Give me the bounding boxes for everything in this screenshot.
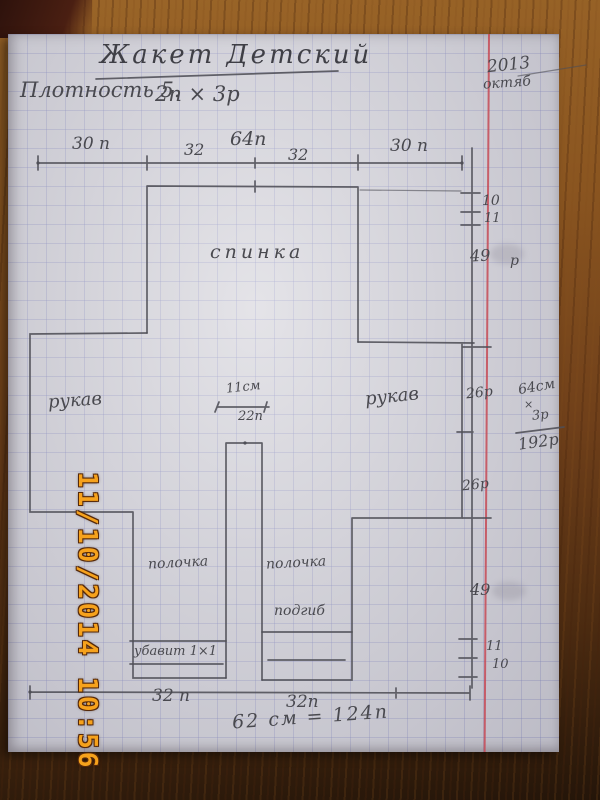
sleeve-left-outline <box>30 333 226 678</box>
dim-back-half-right: 32 <box>288 147 308 163</box>
page-title: Жакет Детский <box>100 42 372 68</box>
dim-left-sleeve-width: 30 п <box>72 136 110 153</box>
label-front-left: полочка <box>148 554 209 571</box>
neck-center-dot <box>243 441 246 444</box>
calc-line2: 3р <box>531 408 549 423</box>
gauge-value: 2п × 3р <box>155 84 240 105</box>
label-sleeve-left: рукав <box>47 390 102 412</box>
neck-width-cm: 11см <box>225 379 261 396</box>
neck-width-stitches: 22п <box>238 410 263 423</box>
dim-end-dot <box>28 690 31 693</box>
corner-month: октяб <box>483 74 532 91</box>
camera-timestamp: 11/10/2014 10:56 <box>68 472 102 772</box>
dim-line-top <box>38 155 462 170</box>
rdim-49-bottom: 49 <box>470 582 490 598</box>
rdim-11-bottom: 11 <box>486 640 503 653</box>
dim-end-dot <box>460 161 463 164</box>
rdim-49-top-suffix: р <box>510 254 519 268</box>
label-decrease: убавит 1×1 <box>134 645 217 658</box>
rdim-10-bottom: 10 <box>492 658 509 671</box>
rdim-10-top: 10 <box>482 194 500 208</box>
rdim-11-top: 11 <box>484 212 501 225</box>
label-hem: подгиб <box>274 604 325 618</box>
label-front-right: полочка <box>266 554 327 571</box>
dim-end-dot <box>36 161 39 164</box>
rdim-26-upper: 26р <box>465 385 493 402</box>
hem-fold-lines <box>262 632 352 660</box>
eraser-smudge <box>492 582 526 600</box>
dim-back-width: 64п <box>230 130 266 149</box>
dim-front-left-width: 32 п <box>152 688 190 705</box>
rdim-49-top: 49 <box>470 247 491 264</box>
rdim-26-lower: 26р <box>461 477 489 494</box>
label-back-piece: спинка <box>210 243 304 262</box>
photo-of-notebook-page: Жакет Детский Плотность 5. 2п × 3р 2013 … <box>0 0 600 800</box>
neck-strip-outline <box>226 443 262 680</box>
back-extension-line <box>360 190 461 191</box>
dim-back-half-left: 32 <box>184 142 204 158</box>
dim-right-sleeve-width: 30 п <box>390 138 428 155</box>
